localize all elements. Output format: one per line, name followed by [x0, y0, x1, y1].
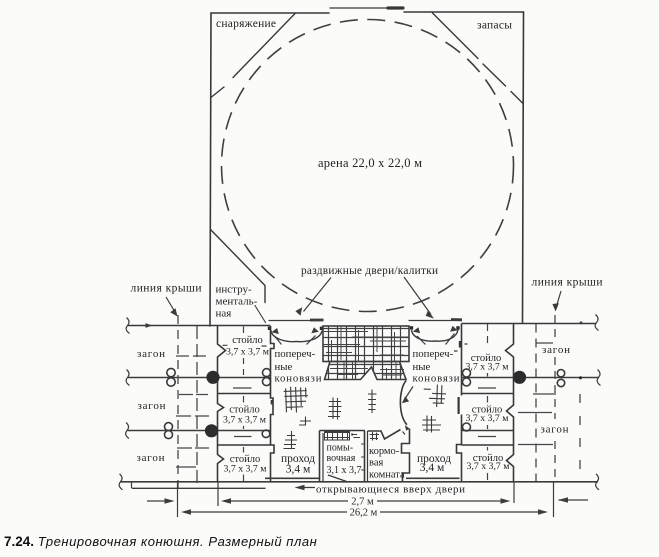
svg-text:менталь-: менталь-	[216, 296, 258, 308]
svg-text:3,7 х 3,7 м: 3,7 х 3,7 м	[466, 362, 509, 373]
svg-text:3,7 х 3,7 м: 3,7 х 3,7 м	[223, 415, 266, 426]
svg-text:линия крыши: линия крыши	[131, 283, 202, 295]
svg-text:помы-: помы-	[327, 443, 354, 454]
svg-text:вочная: вочная	[327, 453, 356, 464]
svg-text:линия крыши: линия крыши	[532, 277, 603, 289]
svg-text:загон: загон	[542, 344, 570, 356]
svg-text:3,4 м: 3,4 м	[420, 462, 445, 474]
svg-text:ная: ная	[216, 308, 232, 320]
svg-text:загон: загон	[138, 400, 166, 412]
svg-text:3,4 м: 3,4 м	[286, 464, 311, 476]
svg-text:открывающиеся вверх двери: открывающиеся вверх двери	[316, 484, 465, 496]
svg-text:3,7 х 3,7 м: 3,7 х 3,7 м	[224, 464, 267, 475]
svg-text:загон: загон	[137, 348, 165, 360]
svg-text:загон: загон	[541, 424, 569, 436]
svg-text:инстру-: инстру-	[216, 284, 252, 296]
svg-text:стойло: стойло	[232, 335, 262, 346]
svg-text:ные: ные	[413, 361, 431, 373]
svg-text:3,1 х 3,7: 3,1 х 3,7	[327, 465, 362, 476]
svg-text:коновязи: коновязи	[275, 373, 322, 385]
svg-text:раздвижные двери/калитки: раздвижные двери/калитки	[301, 265, 438, 277]
svg-text:коновязи: коновязи	[413, 373, 460, 385]
svg-text:комната: комната	[369, 470, 405, 481]
svg-text:вая: вая	[369, 458, 383, 469]
svg-text:запасы: запасы	[477, 20, 512, 32]
svg-text:попереч-: попереч-	[275, 348, 316, 360]
svg-text:3,7 х 3,7 м: 3,7 х 3,7 м	[466, 413, 509, 424]
svg-text:3,7 х 3,7 м: 3,7 х 3,7 м	[467, 461, 510, 472]
svg-text:снаряжение: снаряжение	[216, 18, 276, 30]
svg-text:кормо-: кормо-	[369, 446, 400, 457]
svg-text:3,7 х 3,7 м: 3,7 х 3,7 м	[226, 347, 269, 358]
svg-text:26,2 м: 26,2 м	[350, 508, 378, 519]
svg-text:арена 22,0 х 22,0 м: арена 22,0 х 22,0 м	[318, 156, 422, 170]
svg-text:ные: ные	[275, 361, 293, 373]
svg-text:попереч-: попереч-	[413, 348, 454, 360]
svg-text:7.24. Тренировочная конюшня. Р: 7.24. Тренировочная конюшня. Размерный п…	[4, 534, 317, 549]
svg-text:загон: загон	[137, 452, 165, 464]
svg-text:2,7 м: 2,7 м	[351, 497, 374, 508]
